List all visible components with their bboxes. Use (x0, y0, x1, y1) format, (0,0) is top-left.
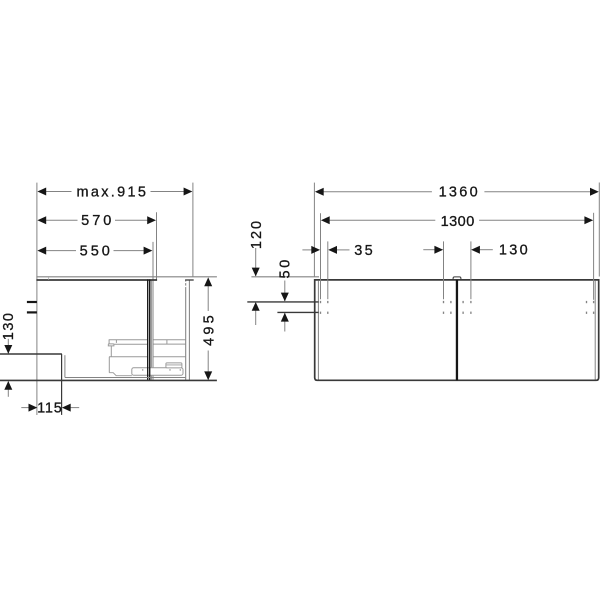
svg-text:120: 120 (249, 219, 265, 249)
svg-text:max.915: max.915 (76, 184, 148, 200)
svg-text:130: 130 (499, 243, 530, 259)
svg-text:50: 50 (278, 257, 294, 278)
svg-text:495: 495 (202, 312, 218, 346)
svg-text:1360: 1360 (439, 185, 480, 201)
svg-text:550: 550 (80, 244, 113, 260)
svg-text:115: 115 (37, 401, 63, 417)
svg-text:35: 35 (354, 243, 375, 259)
svg-text:1300: 1300 (441, 214, 475, 230)
svg-text:130: 130 (1, 312, 17, 341)
svg-text:570: 570 (81, 213, 114, 229)
